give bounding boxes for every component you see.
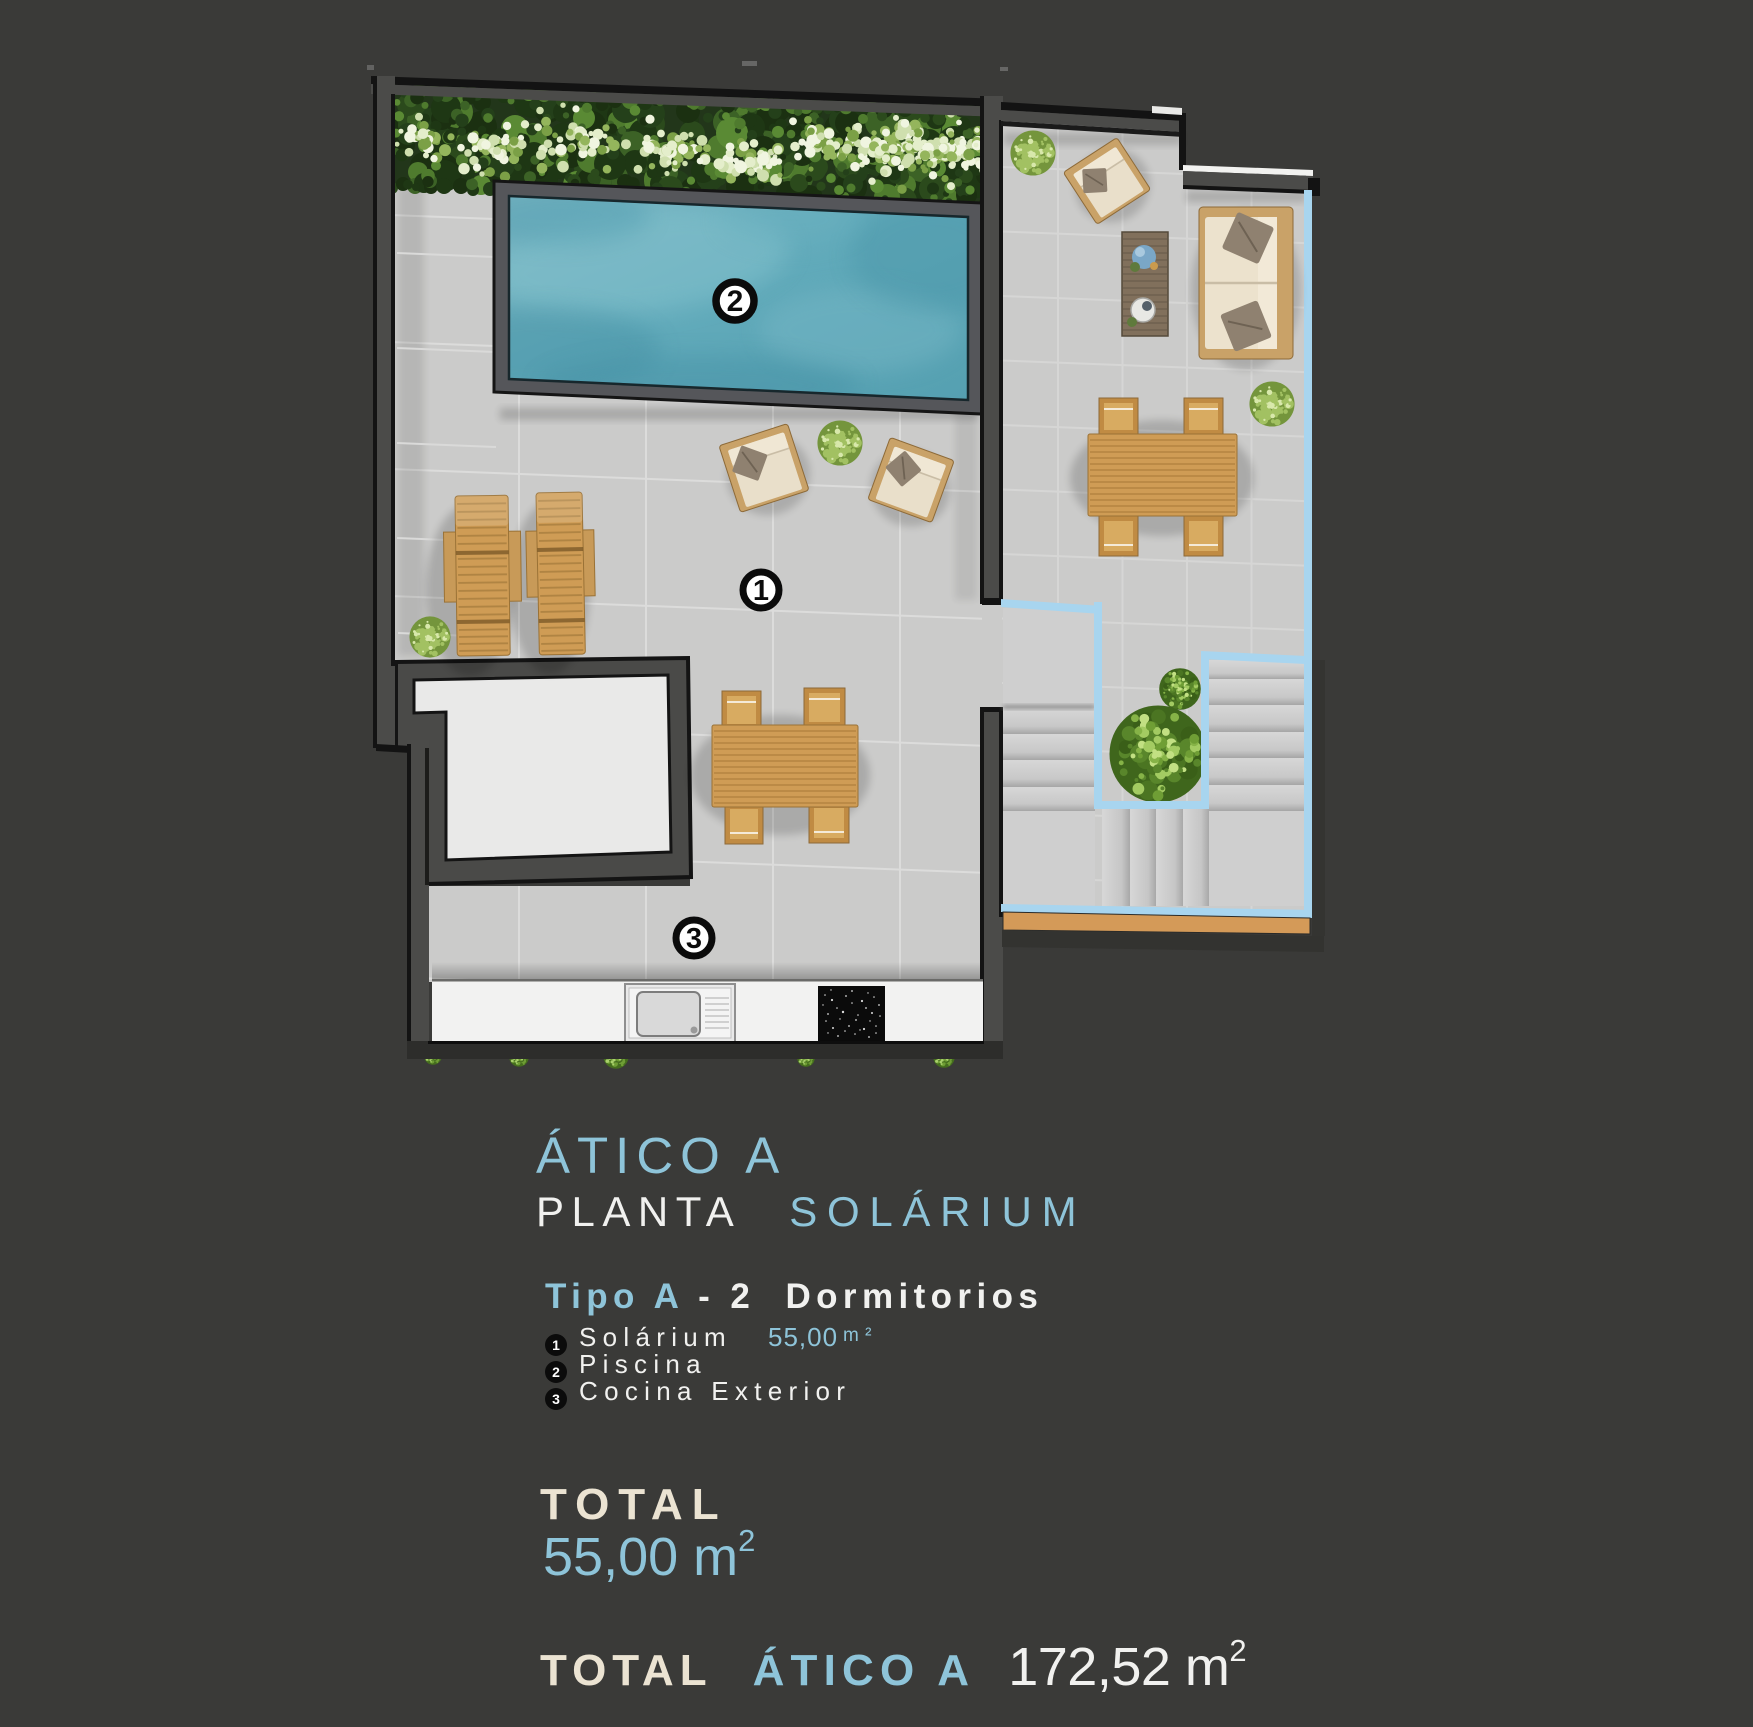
svg-text:1: 1 <box>753 575 769 607</box>
svg-text:3: 3 <box>686 923 702 955</box>
svg-text:2: 2 <box>727 285 744 318</box>
